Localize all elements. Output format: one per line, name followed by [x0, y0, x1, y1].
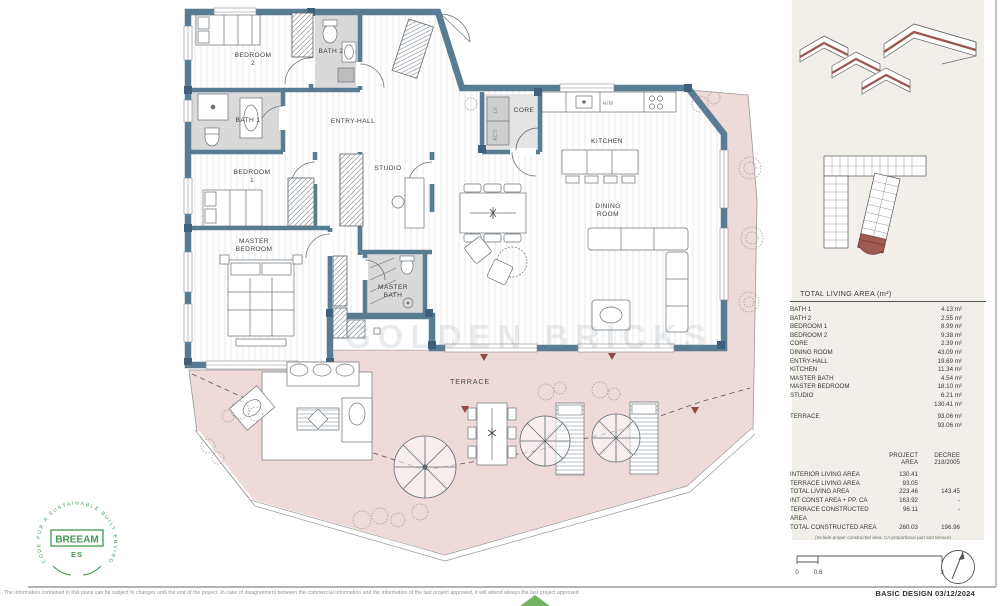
- label-kitchen: KITCHEN: [591, 138, 623, 145]
- table-row-total: 93.06 m²: [790, 422, 986, 431]
- summary-footnote: (Include proper constructed area, CA pro…: [790, 535, 986, 540]
- summary-header: PROJECTAREA DECREE218/2005: [790, 452, 986, 467]
- label-bath1: BATH 1: [236, 117, 261, 124]
- developer-logo-icon: [512, 595, 558, 606]
- panel-divider: [995, 0, 997, 587]
- watermark: GOLDEN BRICKS: [345, 318, 690, 356]
- table-row: MASTER BATH4.54 m²: [790, 375, 986, 384]
- title-block: BASIC DESIGN 03/12/2024: [875, 589, 975, 598]
- label-entry-hall: ENTRY-HALL: [331, 118, 375, 125]
- breeam-region: ES: [71, 550, 83, 559]
- north-arrow-icon: [936, 546, 980, 588]
- table-row: TOTAL CONSTRUCTED AREA260.03196.96: [790, 524, 986, 533]
- key-plan: [824, 156, 926, 257]
- table-row: KITCHEN11.34 m²: [790, 366, 986, 375]
- master-bed: [220, 255, 302, 346]
- label-dining-room: DINING: [595, 203, 620, 210]
- table-row-subtotal: 130.41 m²: [790, 401, 986, 410]
- svg-text:1: 1: [250, 177, 254, 184]
- constructed-area-table: PROJECTAREA DECREE218/2005 INTERIOR LIVI…: [790, 452, 986, 540]
- table-row: DINING ROOM43.09 m²: [790, 349, 986, 358]
- svg-text:BEDROOM: BEDROOM: [236, 246, 273, 253]
- terrace-dining-set: [468, 403, 516, 465]
- table-row: TERRACE LIVING AREA93.05: [790, 480, 986, 489]
- svg-text:ROOM: ROOM: [597, 211, 619, 218]
- disclaimer-text: The information contained in this plans …: [4, 590, 764, 596]
- svg-text:0.6: 0.6: [814, 570, 823, 576]
- svg-text:2: 2: [251, 60, 255, 67]
- label-lv: LV: [493, 107, 499, 114]
- table-row: BATH 14.13 m²: [790, 306, 986, 315]
- breeam-logo: CODE FOR A SUSTAINABLE BUILT ENVIRONMENT…: [27, 494, 131, 592]
- table-row: INT CONST AREA + PP. CA163.92-: [790, 497, 986, 506]
- table-row: MASTER BEDROOM18.10 m²: [790, 383, 986, 392]
- label-bedroom1: BEDROOM: [234, 169, 271, 176]
- label-bath2: BATH 2: [319, 48, 344, 55]
- svg-text:0: 0: [795, 570, 799, 576]
- label-bedroom2: BEDROOM: [235, 52, 272, 59]
- table-row: TOTAL LIVING AREA223.46143.45: [790, 488, 986, 497]
- table-row: STUDIO6.21 m²: [790, 392, 986, 401]
- table-row: BEDROOM 18.99 m²: [790, 323, 986, 332]
- label-hm: H/M: [603, 101, 614, 107]
- label-terrace: TERRACE: [450, 377, 490, 386]
- label-studio: STUDIO: [374, 165, 401, 172]
- table-row: ENTRY-HALL19.69 m²: [790, 358, 986, 367]
- breeam-name: BREEAM: [55, 535, 98, 546]
- area-table-title: TOTAL LIVING AREA (m²): [790, 289, 986, 302]
- table-row: BEDROOM 29.38 m²: [790, 332, 986, 341]
- table-row: TERRACE CONSTRUCTED AREA96.11-: [790, 506, 986, 524]
- table-row: TERRACE93.06 m²: [790, 413, 986, 422]
- label-core: CORE: [514, 107, 535, 114]
- table-row: BATH 22.55 m²: [790, 315, 986, 324]
- axon-buildings: [800, 24, 976, 94]
- svg-text:BATH: BATH: [384, 292, 403, 299]
- label-master-bath: MASTER: [378, 284, 408, 291]
- total-living-area-table: TOTAL LIVING AREA (m²) BATH 14.13 m² BAT…: [790, 289, 986, 430]
- bedroom1-bed: [203, 190, 262, 226]
- label-acs: ACS: [493, 129, 499, 141]
- label-master-bedroom: MASTER: [239, 238, 269, 245]
- bedroom2-bed: [196, 15, 260, 45]
- table-row: INTERIOR LIVING AREA130.41: [790, 471, 986, 480]
- plan-sheet: BEDROOM 2 BATH 2 BATH 1 BEDROOM 1 ENTRY-…: [0, 0, 1001, 606]
- terrace-umbrella-large: [394, 436, 456, 498]
- dining-table: [460, 184, 526, 242]
- footer-divider: [28, 586, 996, 588]
- table-row: CORE2.39 m²: [790, 340, 986, 349]
